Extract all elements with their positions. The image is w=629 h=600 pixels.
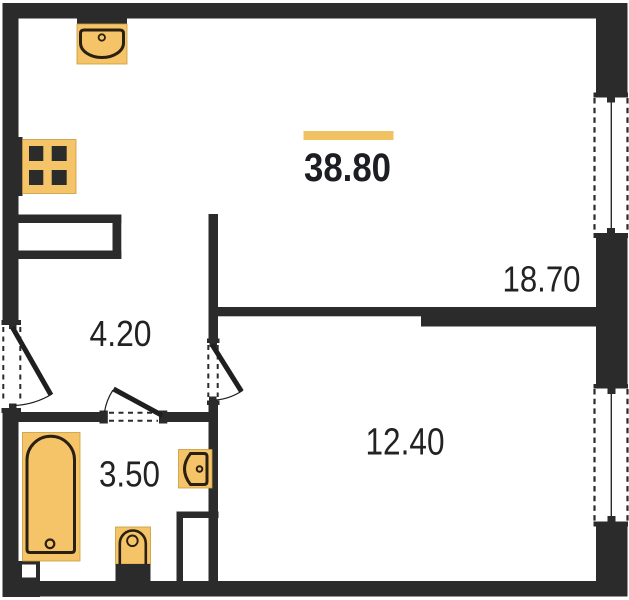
svg-text:12.40: 12.40	[366, 422, 445, 464]
svg-text:4.20: 4.20	[90, 313, 152, 354]
svg-text:38.80: 38.80	[304, 146, 391, 190]
svg-text:3.50: 3.50	[99, 454, 160, 495]
svg-text:18.70: 18.70	[503, 259, 581, 300]
